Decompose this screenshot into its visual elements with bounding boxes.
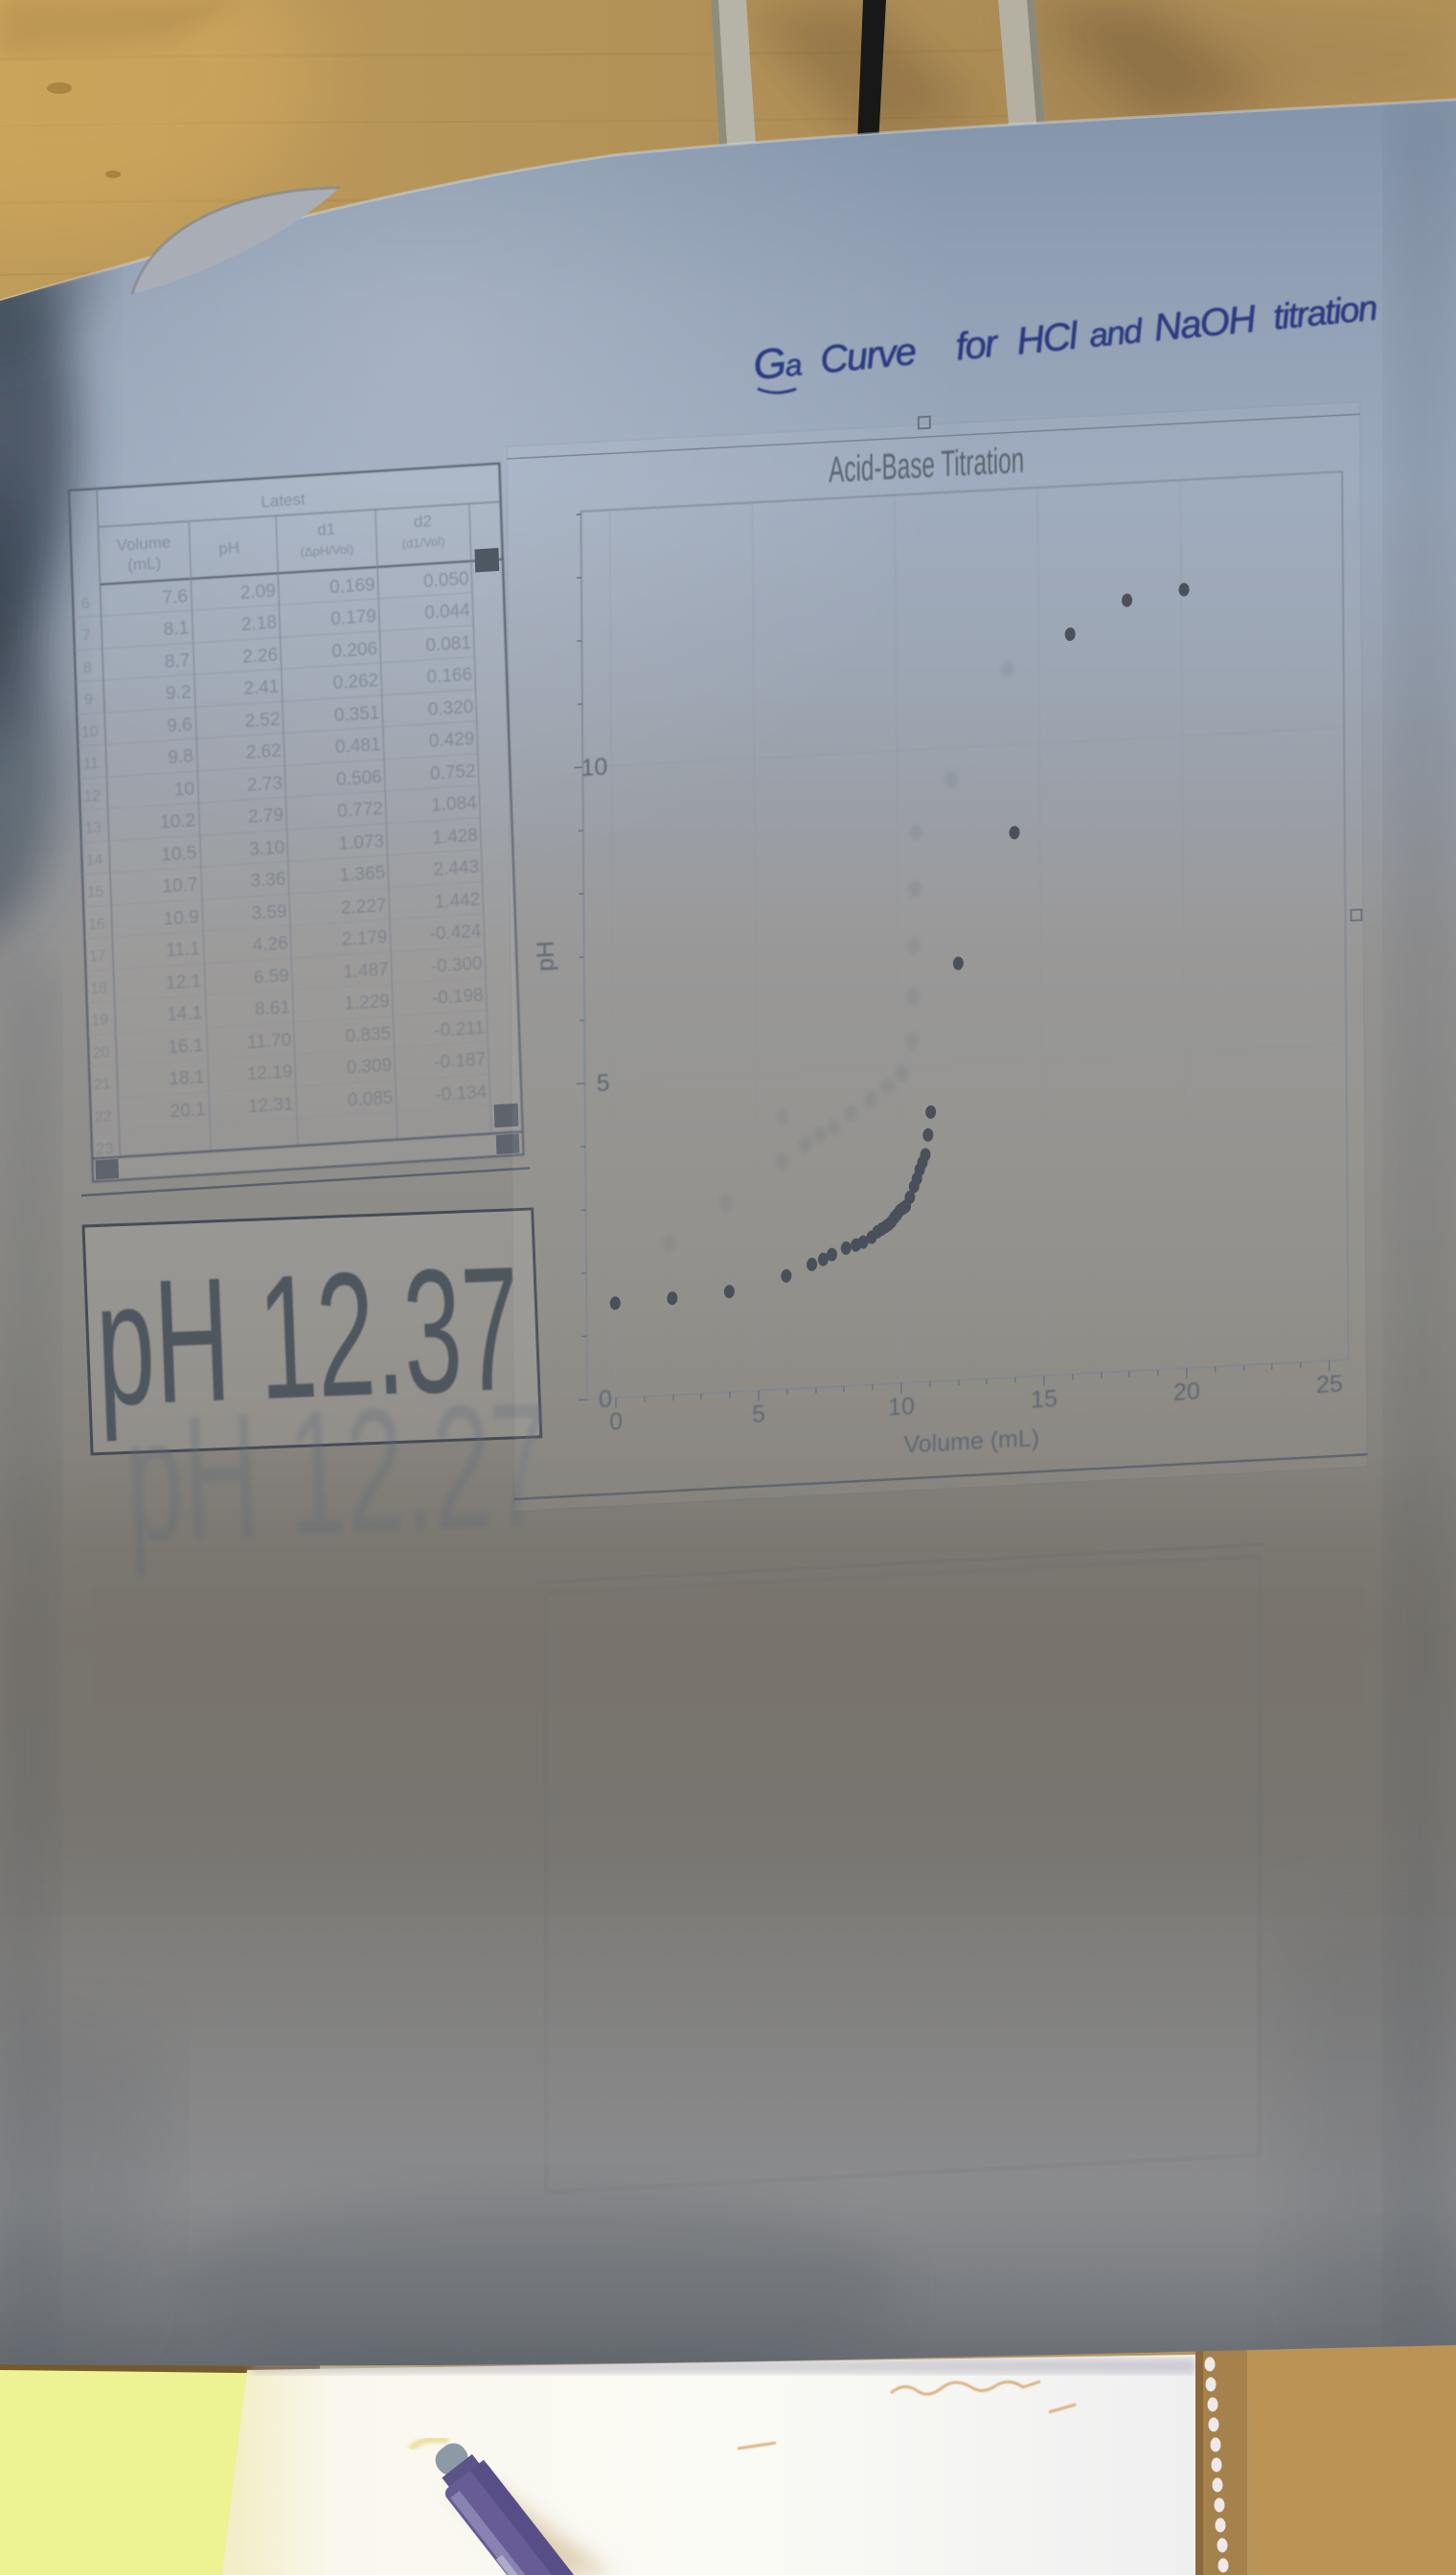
svg-text:0.772: 0.772 xyxy=(337,799,383,822)
svg-text:5: 5 xyxy=(752,1401,765,1428)
svg-text:Volume: Volume xyxy=(116,533,171,555)
svg-text:15: 15 xyxy=(1031,1385,1058,1413)
svg-text:0.481: 0.481 xyxy=(335,735,381,758)
svg-text:0.085: 0.085 xyxy=(348,1088,394,1111)
svg-text:12.31: 12.31 xyxy=(248,1094,294,1117)
svg-text:-0.424: -0.424 xyxy=(429,922,482,945)
svg-text:10.5: 10.5 xyxy=(161,843,197,865)
svg-text:1.229: 1.229 xyxy=(344,991,390,1014)
svg-text:d2: d2 xyxy=(414,512,433,531)
svg-text:0.752: 0.752 xyxy=(430,762,476,785)
svg-text:11.1: 11.1 xyxy=(166,939,200,961)
svg-text:pH: pH xyxy=(533,940,559,971)
svg-text:0.169: 0.169 xyxy=(330,575,375,598)
svg-text:0.166: 0.166 xyxy=(426,665,472,688)
svg-text:-0.211: -0.211 xyxy=(434,1018,485,1041)
svg-text:0.262: 0.262 xyxy=(332,671,378,694)
svg-text:0.351: 0.351 xyxy=(333,703,379,726)
svg-text:0.320: 0.320 xyxy=(427,697,473,720)
svg-text:17: 17 xyxy=(89,947,106,965)
svg-text:8.61: 8.61 xyxy=(255,997,291,1019)
svg-text:HCl: HCl xyxy=(1014,314,1081,362)
svg-text:20: 20 xyxy=(1173,1378,1200,1405)
svg-text:pH 12.27: pH 12.27 xyxy=(122,1365,553,1579)
svg-text:0.206: 0.206 xyxy=(331,639,377,662)
svg-text:21: 21 xyxy=(93,1076,110,1093)
svg-text:12: 12 xyxy=(83,787,101,805)
svg-text:13: 13 xyxy=(84,819,102,836)
svg-text:9.8: 9.8 xyxy=(168,746,193,768)
svg-text:and: and xyxy=(1087,312,1145,354)
svg-text:0.506: 0.506 xyxy=(336,767,382,790)
svg-text:6.59: 6.59 xyxy=(254,966,290,988)
svg-text:-0.187: -0.187 xyxy=(434,1050,487,1073)
svg-text:10: 10 xyxy=(580,754,607,782)
svg-text:0.044: 0.044 xyxy=(424,601,471,624)
svg-text:1.442: 1.442 xyxy=(434,890,480,913)
svg-text:d1: d1 xyxy=(317,520,336,539)
svg-text:2.443: 2.443 xyxy=(433,857,479,880)
svg-text:-0.198: -0.198 xyxy=(432,986,485,1009)
svg-text:19: 19 xyxy=(91,1012,108,1029)
svg-text:22: 22 xyxy=(95,1108,112,1126)
svg-text:3.59: 3.59 xyxy=(251,901,287,923)
svg-text:25: 25 xyxy=(1316,1371,1343,1399)
svg-text:8.1: 8.1 xyxy=(163,618,189,640)
svg-text:0: 0 xyxy=(609,1408,623,1436)
svg-text:20: 20 xyxy=(92,1044,109,1061)
svg-text:for: for xyxy=(954,322,1001,368)
svg-text:12.19: 12.19 xyxy=(246,1061,292,1084)
svg-text:10.7: 10.7 xyxy=(162,875,198,897)
svg-text:15: 15 xyxy=(86,883,103,900)
svg-text:2.52: 2.52 xyxy=(244,710,281,732)
svg-text:1.428: 1.428 xyxy=(432,826,478,849)
svg-text:2.62: 2.62 xyxy=(245,741,282,763)
svg-text:7: 7 xyxy=(82,627,92,645)
svg-text:10: 10 xyxy=(173,779,194,800)
svg-text:(d1/Vol): (d1/Vol) xyxy=(401,534,444,551)
svg-text:2.41: 2.41 xyxy=(243,677,280,699)
svg-text:16.1: 16.1 xyxy=(168,1036,204,1058)
svg-text:2.73: 2.73 xyxy=(247,773,284,795)
svg-text:10.2: 10.2 xyxy=(160,810,196,832)
svg-text:10.9: 10.9 xyxy=(163,907,199,929)
svg-text:16: 16 xyxy=(88,916,105,933)
svg-text:0.081: 0.081 xyxy=(425,633,471,656)
svg-text:-0.134: -0.134 xyxy=(435,1082,488,1105)
svg-text:14.1: 14.1 xyxy=(167,1003,203,1025)
svg-text:0.309: 0.309 xyxy=(346,1056,392,1079)
svg-text:1.084: 1.084 xyxy=(431,793,478,816)
svg-text:8.7: 8.7 xyxy=(165,650,191,672)
svg-text:Latest: Latest xyxy=(261,490,306,512)
svg-text:23: 23 xyxy=(95,1139,114,1158)
svg-text:18: 18 xyxy=(90,980,107,997)
svg-text:9: 9 xyxy=(84,692,94,709)
svg-text:10: 10 xyxy=(81,723,99,741)
svg-text:9.2: 9.2 xyxy=(166,682,192,704)
svg-text:2.09: 2.09 xyxy=(240,581,277,604)
svg-text:2.18: 2.18 xyxy=(241,613,278,635)
svg-text:9.6: 9.6 xyxy=(167,715,193,737)
svg-text:11.70: 11.70 xyxy=(247,1030,292,1053)
svg-text:0.179: 0.179 xyxy=(330,606,376,629)
svg-text:18.1: 18.1 xyxy=(169,1067,205,1089)
svg-text:1.073: 1.073 xyxy=(338,832,384,855)
svg-text:-0.300: -0.300 xyxy=(430,954,483,977)
svg-text:4.26: 4.26 xyxy=(252,933,288,955)
svg-text:0.429: 0.429 xyxy=(428,729,474,752)
svg-text:11: 11 xyxy=(82,755,99,772)
svg-text:14: 14 xyxy=(85,852,102,869)
svg-text:12.1: 12.1 xyxy=(166,971,202,993)
svg-text:10: 10 xyxy=(888,1393,915,1421)
svg-text:(mL): (mL) xyxy=(127,554,162,574)
svg-text:2.179: 2.179 xyxy=(342,927,388,950)
svg-text:3.10: 3.10 xyxy=(249,837,285,859)
svg-text:3.36: 3.36 xyxy=(250,869,286,891)
svg-text:2.26: 2.26 xyxy=(242,646,279,668)
svg-text:5: 5 xyxy=(597,1070,610,1098)
svg-text:2.79: 2.79 xyxy=(248,805,284,827)
svg-text:6: 6 xyxy=(80,596,90,613)
svg-text:20.1: 20.1 xyxy=(170,1100,206,1122)
svg-text:pH: pH xyxy=(218,538,239,558)
svg-text:1.487: 1.487 xyxy=(343,960,389,983)
svg-text:2.227: 2.227 xyxy=(340,896,386,919)
svg-text:8: 8 xyxy=(83,660,93,677)
svg-text:7.6: 7.6 xyxy=(162,586,188,608)
svg-text:0.835: 0.835 xyxy=(345,1024,391,1047)
svg-text:1.365: 1.365 xyxy=(339,863,385,886)
svg-text:0.050: 0.050 xyxy=(423,569,469,592)
